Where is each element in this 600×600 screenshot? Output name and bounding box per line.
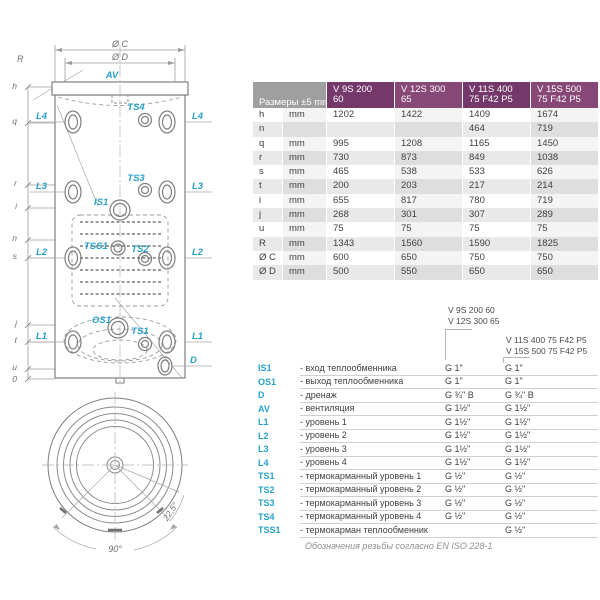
conn-code: L1 [258, 416, 300, 430]
dim-value: 650 [531, 265, 599, 279]
av-label: AV [105, 70, 119, 81]
conn-size-1: G ½" [445, 497, 505, 511]
dim-value: 655 [327, 194, 395, 208]
column-header-model-4: V 15S 50075 F42 P5 [531, 82, 599, 108]
dim-value: 780 [463, 194, 531, 208]
dim-row-unit: mm [283, 237, 327, 251]
svg-text:n: n [12, 233, 17, 243]
conn-desc: - термокарман теплообменник [300, 524, 445, 538]
svg-text:s: s [13, 251, 18, 261]
dim-row-unit: mm [283, 151, 327, 165]
svg-text:h: h [12, 81, 17, 91]
conn-size-1: G ½" [445, 484, 505, 498]
svg-text:L2: L2 [36, 247, 48, 258]
dim-value: 1590 [463, 237, 531, 251]
conn-size-2: G ½" [505, 524, 598, 538]
conn-size-1: G ½" [445, 511, 505, 525]
dim-value: 750 [463, 251, 531, 265]
dim-row-unit: mm [283, 137, 327, 151]
dim-value: 464 [463, 122, 531, 136]
svg-text:D: D [190, 355, 197, 366]
tank-technical-drawing: Ø C Ø D R [0, 0, 250, 600]
dim-value: 217 [463, 179, 531, 193]
conn-group-bracket-1 [445, 329, 472, 360]
dim-value: 873 [395, 151, 463, 165]
svg-text:OS1: OS1 [92, 315, 111, 326]
dim-value: 200 [327, 179, 395, 193]
dim-value: 1208 [395, 137, 463, 151]
dim-row-unit: mm [283, 165, 327, 179]
svg-text:j: j [14, 318, 18, 328]
dim-value: 1674 [531, 108, 599, 122]
conn-desc: - термокарманный уровень 3 [300, 497, 445, 511]
dim-value: 307 [463, 208, 531, 222]
dim-row-label: Ø C [253, 251, 283, 265]
dim-value: 301 [395, 208, 463, 222]
angle-90-label: 90° [108, 544, 122, 554]
conn-desc: - уровень 1 [300, 416, 445, 430]
dim-value: 1450 [531, 137, 599, 151]
dim-value: 817 [395, 194, 463, 208]
conn-desc: - термокарманный уровень 1 [300, 470, 445, 484]
svg-text:TS1: TS1 [131, 326, 148, 337]
svg-text:t: t [15, 335, 18, 345]
dim-row-label: Ø D [253, 265, 283, 279]
dim-row-unit: mm [283, 108, 327, 122]
left-dimension-labels: h q r i n s j t u 0 [12, 81, 18, 384]
dim-row-unit: mm [283, 222, 327, 236]
conn-size-2: G 1½" [505, 403, 598, 417]
svg-text:0: 0 [12, 374, 17, 384]
dim-value: 268 [327, 208, 395, 222]
conn-desc: - вход теплообменника [300, 362, 445, 376]
conn-code: AV [258, 403, 300, 417]
svg-text:r: r [14, 178, 18, 188]
dim-row-label: u [253, 222, 283, 236]
dim-row-unit [283, 122, 327, 136]
dim-row-unit: mm [283, 179, 327, 193]
dim-value: 626 [531, 165, 599, 179]
connection-table: IS1 - вход теплообменника G 1" G 1" OS1 … [258, 362, 598, 538]
conn-size-2: G ½" [505, 497, 598, 511]
conn-size-2: G 1" [505, 376, 598, 390]
dim-value: 650 [463, 265, 531, 279]
svg-text:u: u [12, 362, 17, 372]
conn-code: TS4 [258, 511, 300, 525]
conn-desc: - уровень 4 [300, 457, 445, 471]
conn-desc: - уровень 3 [300, 443, 445, 457]
conn-size-1: G 1" [445, 362, 505, 376]
dim-value: 1343 [327, 237, 395, 251]
svg-text:L4: L4 [192, 111, 204, 122]
conn-desc: - выход теплообменника [300, 376, 445, 390]
conn-code: IS1 [258, 362, 300, 376]
conn-code: TS3 [258, 497, 300, 511]
dim-value: 1409 [463, 108, 531, 122]
conn-size-1 [445, 524, 505, 538]
dim-row-unit: mm [283, 194, 327, 208]
conn-code: TS2 [258, 484, 300, 498]
conn-code: TSS1 [258, 524, 300, 538]
conn-desc: - дренаж [300, 389, 445, 403]
dim-row-label: r [253, 151, 283, 165]
conn-desc: - уровень 2 [300, 430, 445, 444]
conn-desc: - термокарманный уровень 4 [300, 511, 445, 525]
dim-value: 1202 [327, 108, 395, 122]
dim-value: 500 [327, 265, 395, 279]
dim-value: 550 [395, 265, 463, 279]
dim-row-label: q [253, 137, 283, 151]
dim-value: 75 [327, 222, 395, 236]
dim-value: 1560 [395, 237, 463, 251]
dim-value: 75 [531, 222, 599, 236]
conn-code: OS1 [258, 376, 300, 390]
dim-row-unit: mm [283, 251, 327, 265]
conn-desc: - вентиляция [300, 403, 445, 417]
dim-value: 995 [327, 137, 395, 151]
dim-row-label: t [253, 179, 283, 193]
dim-value: 538 [395, 165, 463, 179]
svg-text:L3: L3 [36, 181, 48, 192]
dim-value: 75 [463, 222, 531, 236]
conn-code: L3 [258, 443, 300, 457]
conn-code: L4 [258, 457, 300, 471]
svg-text:L4: L4 [36, 111, 48, 122]
dim-row-label: i [253, 194, 283, 208]
dim-row-label: n [253, 122, 283, 136]
heat-exchanger-coil [80, 222, 162, 294]
conn-size-1: G 1½" [445, 416, 505, 430]
dim-value: 1422 [395, 108, 463, 122]
conn-size-1: G 1½" [445, 403, 505, 417]
dim-value: 650 [395, 251, 463, 265]
conn-size-1: G ½" [445, 470, 505, 484]
dim-value: 203 [395, 179, 463, 193]
conn-group-header-2: V 11S 400 75 F42 P5 V 15S 500 75 F42 P5 [506, 335, 587, 356]
svg-text:q: q [12, 116, 17, 126]
conn-size-2: G ¾" B [505, 389, 598, 403]
svg-text:TS3: TS3 [127, 173, 145, 184]
svg-text:L1: L1 [192, 331, 203, 342]
dim-value: 1825 [531, 237, 599, 251]
thread-standard-footnote: Обозначения резьбы согласно EN ISO 228-1 [305, 541, 492, 551]
svg-text:i: i [15, 201, 18, 211]
dim-value: 214 [531, 179, 599, 193]
conn-desc: - термокарманный уровень 2 [300, 484, 445, 498]
conn-size-2: G 1½" [505, 443, 598, 457]
conn-size-2: G ½" [505, 511, 598, 525]
dim-row-unit: mm [283, 265, 327, 279]
angle-225-label: 22,5° [160, 500, 180, 524]
svg-text:L1: L1 [36, 331, 47, 342]
dim-value: 719 [531, 122, 599, 136]
conn-code: D [258, 389, 300, 403]
dim-value: 75 [395, 222, 463, 236]
conn-size-1: G 1½" [445, 443, 505, 457]
conn-size-1: G 1" [445, 376, 505, 390]
dim-radius-label: R [17, 54, 24, 64]
dim-row-label: j [253, 208, 283, 222]
dim-value: 465 [327, 165, 395, 179]
conn-size-2: G 1½" [505, 430, 598, 444]
dim-row-unit: mm [283, 208, 327, 222]
svg-text:L3: L3 [192, 181, 204, 192]
dim-value [327, 122, 395, 136]
conn-group-header-1: V 9S 200 60 V 12S 300 65 [448, 305, 500, 326]
conn-size-2: G 1½" [505, 416, 598, 430]
dimension-table: Размеры ±5 mm V 9S 20060 V 12S 30065 V 1… [253, 82, 599, 280]
column-header-model-2: V 12S 30065 [395, 82, 463, 108]
svg-text:TSS1: TSS1 [84, 241, 108, 252]
dimension-table-title: Размеры ±5 mm [253, 82, 327, 108]
dim-row-label: R [253, 237, 283, 251]
dim-value: 1038 [531, 151, 599, 165]
conn-code: TS1 [258, 470, 300, 484]
svg-text:TS2: TS2 [131, 244, 149, 255]
column-header-model-3: V 11S 40075 F42 P5 [463, 82, 531, 108]
dim-value: 730 [327, 151, 395, 165]
conn-size-2: G ½" [505, 470, 598, 484]
dim-row-label: h [253, 108, 283, 122]
column-header-model-1: V 9S 20060 [327, 82, 395, 108]
conn-size-1: G 1½" [445, 430, 505, 444]
conn-size-1: G ¾" B [445, 389, 505, 403]
dim-value: 719 [531, 194, 599, 208]
conn-size-2: G ½" [505, 484, 598, 498]
dim-value: 289 [531, 208, 599, 222]
conn-size-2: G 1½" [505, 457, 598, 471]
dim-row-label: s [253, 165, 283, 179]
bottom-view: 90° 22,5° [42, 392, 188, 554]
svg-text:TS4: TS4 [127, 102, 145, 113]
conn-code: L2 [258, 430, 300, 444]
conn-size-2: G 1" [505, 362, 598, 376]
dim-value [395, 122, 463, 136]
svg-text:L2: L2 [192, 247, 204, 258]
datasheet-page: Ø C Ø D R [0, 0, 600, 600]
dim-value: 750 [531, 251, 599, 265]
dim-value: 1165 [463, 137, 531, 151]
svg-text:IS1: IS1 [94, 197, 108, 208]
dim-value: 849 [463, 151, 531, 165]
conn-size-1: G 1½" [445, 457, 505, 471]
dim-value: 600 [327, 251, 395, 265]
dim-value: 533 [463, 165, 531, 179]
